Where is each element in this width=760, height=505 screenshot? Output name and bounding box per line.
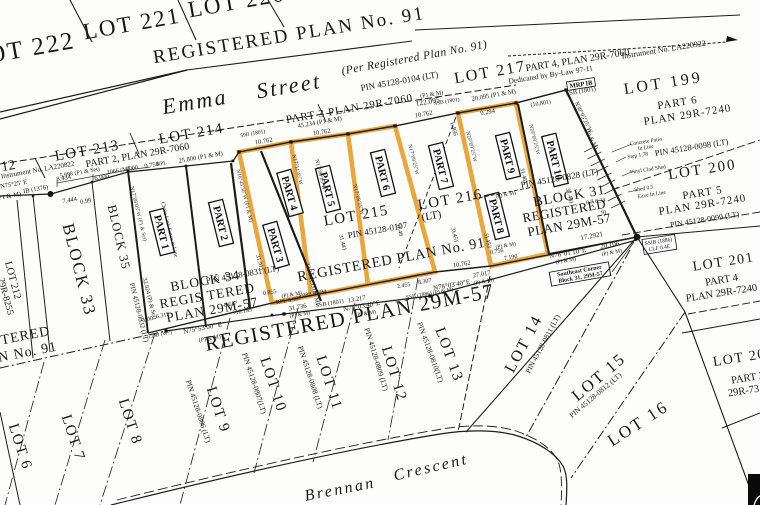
svg-text:12: 12: [0, 158, 16, 175]
